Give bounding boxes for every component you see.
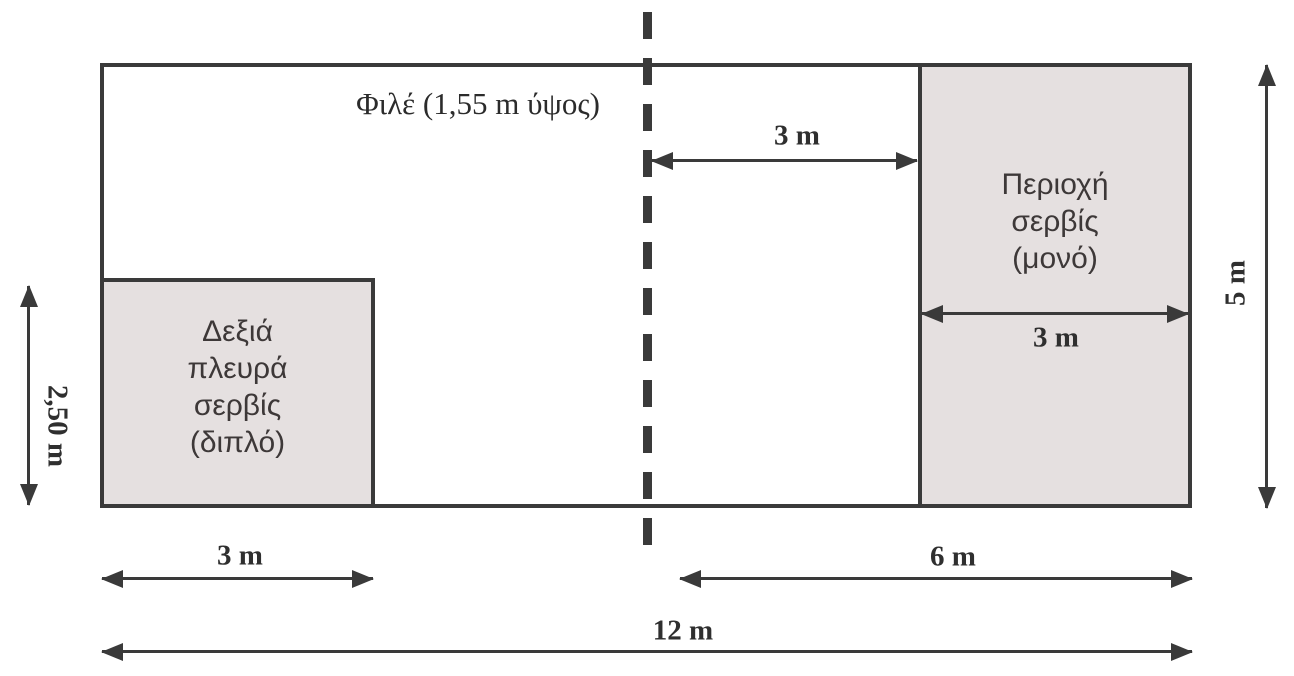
dim-arrow-right-zone-width [922,312,1188,315]
doubles-service-zone-label: Δεξιά πλευρά σερβίς (διπλό) [100,313,375,461]
dim-label-net-to-service: 3 m [774,120,820,153]
net-label: Φιλέ (1,55 m ύψος) [356,86,600,122]
dim-label-court-height: 5 m [1220,260,1253,306]
dim-arrow-court-height [1265,65,1268,508]
dim-label-right-zone-width: 3 m [1033,322,1079,355]
zone-label-line: (διπλό) [100,424,375,461]
dim-label-half-court-width: 6 m [930,541,976,574]
dim-arrow-left-zone-height [27,286,30,505]
zone-label-line: (μονό) [918,240,1192,277]
singles-service-zone [918,63,1192,508]
zone-label-line: σερβίς [100,387,375,424]
dim-arrow-left-zone-width [102,577,373,580]
zone-label-line: Περιοχή [918,166,1192,203]
dim-arrow-net-to-service [652,159,917,162]
zone-label-line: σερβίς [918,203,1192,240]
dim-label-left-zone-width: 3 m [217,540,263,573]
dim-arrow-half-court-width [680,577,1192,580]
singles-service-zone-label: Περιοχή σερβίς (μονό) [918,166,1192,277]
net-dashed-line [643,12,652,558]
court-diagram: Φιλέ (1,55 m ύψος) Δεξιά πλευρά σερβίς (… [0,0,1294,676]
dim-arrow-total-width [102,650,1192,653]
zone-label-line: πλευρά [100,350,375,387]
dim-label-left-zone-height: 2,50 m [41,385,74,467]
dim-label-total-width: 12 m [653,615,713,648]
zone-label-line: Δεξιά [100,313,375,350]
